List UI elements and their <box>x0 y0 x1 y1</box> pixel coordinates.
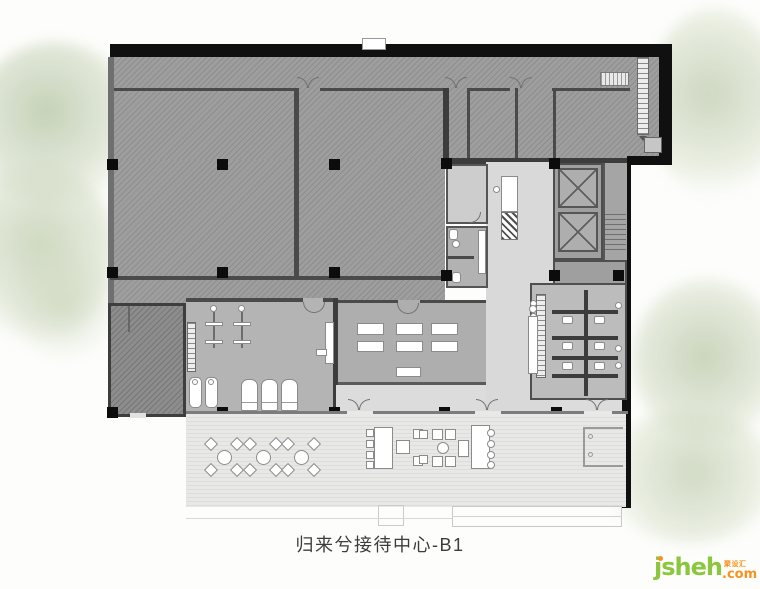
column <box>613 270 624 281</box>
chair <box>432 429 443 440</box>
column <box>549 158 560 169</box>
chair <box>445 456 456 467</box>
exercise-machine <box>205 322 223 326</box>
chair <box>419 455 428 464</box>
tree <box>8 250 118 360</box>
dining-north-wall <box>420 300 486 303</box>
stool-icon <box>493 186 500 193</box>
pantry-room <box>446 164 488 224</box>
corridor-wall <box>552 88 630 91</box>
table <box>396 341 423 352</box>
stairs <box>600 72 629 86</box>
stairs <box>605 214 626 254</box>
toilet-icon <box>562 342 573 350</box>
lounger <box>241 379 258 411</box>
toilet-icon <box>594 342 605 350</box>
exercise-machine <box>238 305 245 312</box>
column <box>107 267 118 278</box>
chair <box>366 461 374 469</box>
column <box>329 159 340 170</box>
hatched-upper-rooms <box>110 57 659 161</box>
stall-partition <box>552 356 584 360</box>
restroom-center-wall <box>584 290 588 396</box>
room-divider-wall <box>515 88 518 160</box>
rooms-south-wall <box>110 276 445 280</box>
elevator-shaft <box>558 212 598 252</box>
chair <box>487 429 495 437</box>
toilet-icon <box>562 362 573 370</box>
exercise-machine <box>233 340 251 344</box>
north-wall <box>110 44 672 57</box>
equipment-box <box>644 137 662 153</box>
watermark-logo: jsheh 聚设汇 .com <box>650 553 760 587</box>
restroom-divider <box>446 256 474 259</box>
chair <box>366 440 374 448</box>
table <box>458 440 469 457</box>
table <box>396 440 410 454</box>
chair <box>487 451 495 459</box>
table <box>396 367 421 377</box>
stall-partition <box>588 310 618 314</box>
round-table <box>437 442 449 454</box>
column <box>107 159 118 170</box>
column <box>329 267 340 278</box>
storage-room-door <box>130 413 146 418</box>
chair <box>419 430 428 439</box>
cabinet <box>478 230 486 274</box>
watermark-brand-text: jsheh <box>654 553 722 581</box>
toilet-icon <box>452 272 461 283</box>
terrace-edge-line <box>186 518 452 519</box>
corridor-wall <box>114 88 299 91</box>
reception-desk-hatch <box>501 212 518 240</box>
room-divider-wall <box>443 88 449 162</box>
column <box>217 267 228 278</box>
corridor-wall <box>468 88 510 91</box>
table <box>431 323 458 335</box>
chair <box>432 456 443 467</box>
stall-partition <box>588 356 618 360</box>
chair <box>487 461 495 469</box>
storage-room <box>108 303 186 417</box>
storage-shelf <box>187 322 196 372</box>
elevator-shaft <box>558 168 598 208</box>
terrace-steps-line <box>452 516 622 517</box>
chair <box>487 440 495 448</box>
sink-icon <box>452 240 460 248</box>
planter-dot <box>588 452 593 457</box>
stall-partition <box>588 336 618 340</box>
north-wall-door <box>362 38 386 50</box>
watermark-suffix-text: .com <box>722 567 757 582</box>
terrace-edge <box>378 505 404 526</box>
stall-partition <box>588 374 618 378</box>
water-station <box>528 316 538 374</box>
round-table <box>256 450 271 465</box>
bench-table <box>374 427 393 469</box>
urinal-icon <box>615 302 622 309</box>
gym-north-wall <box>186 298 303 302</box>
column <box>441 158 452 169</box>
stall-partition <box>552 336 584 340</box>
reception-desk <box>501 176 518 212</box>
dining-north-wall <box>338 300 398 303</box>
east-step-wall <box>627 156 672 165</box>
column <box>217 159 228 170</box>
toilet-icon <box>562 316 573 324</box>
chair <box>445 429 456 440</box>
table <box>357 323 384 335</box>
toilet-icon <box>594 316 605 324</box>
toilet-icon <box>594 362 605 370</box>
counter <box>316 349 327 356</box>
terrace <box>186 414 626 507</box>
toilet-icon <box>449 229 458 240</box>
chair <box>366 451 374 459</box>
exercise-bike <box>208 379 214 385</box>
hatched-left-rooms <box>110 160 445 303</box>
urinal-icon <box>615 345 622 352</box>
room-divider-wall <box>467 88 470 160</box>
exercise-machine <box>233 322 251 326</box>
floor-plan-canvas: 归来兮接待中心-B1 jsheh 聚设汇 .com <box>0 0 760 589</box>
urinal-icon <box>615 362 622 369</box>
cabinet <box>325 322 334 364</box>
exercise-bike <box>192 379 198 385</box>
watermark-dot-icon <box>658 556 663 561</box>
wall-stub <box>128 306 130 332</box>
plan-title: 归来兮接待中心-B1 <box>0 531 760 557</box>
table <box>396 323 423 335</box>
planter-dot <box>588 434 593 439</box>
column <box>107 407 118 418</box>
table <box>431 341 458 352</box>
stairs <box>637 57 649 135</box>
planter-feature <box>583 427 623 467</box>
lounger <box>261 379 278 411</box>
water-station <box>529 305 537 313</box>
stall-partition <box>552 374 584 378</box>
corridor-wall <box>320 88 443 91</box>
stall-partition <box>552 310 584 314</box>
lounger <box>281 379 298 411</box>
exercise-machine <box>210 305 217 312</box>
room-divider-wall <box>553 88 556 160</box>
table <box>357 341 384 352</box>
exercise-machine <box>205 340 223 344</box>
column <box>549 270 560 281</box>
round-table <box>294 450 309 465</box>
column <box>441 270 452 281</box>
chair <box>366 429 374 437</box>
round-table <box>217 450 232 465</box>
room-divider-wall <box>294 88 299 280</box>
